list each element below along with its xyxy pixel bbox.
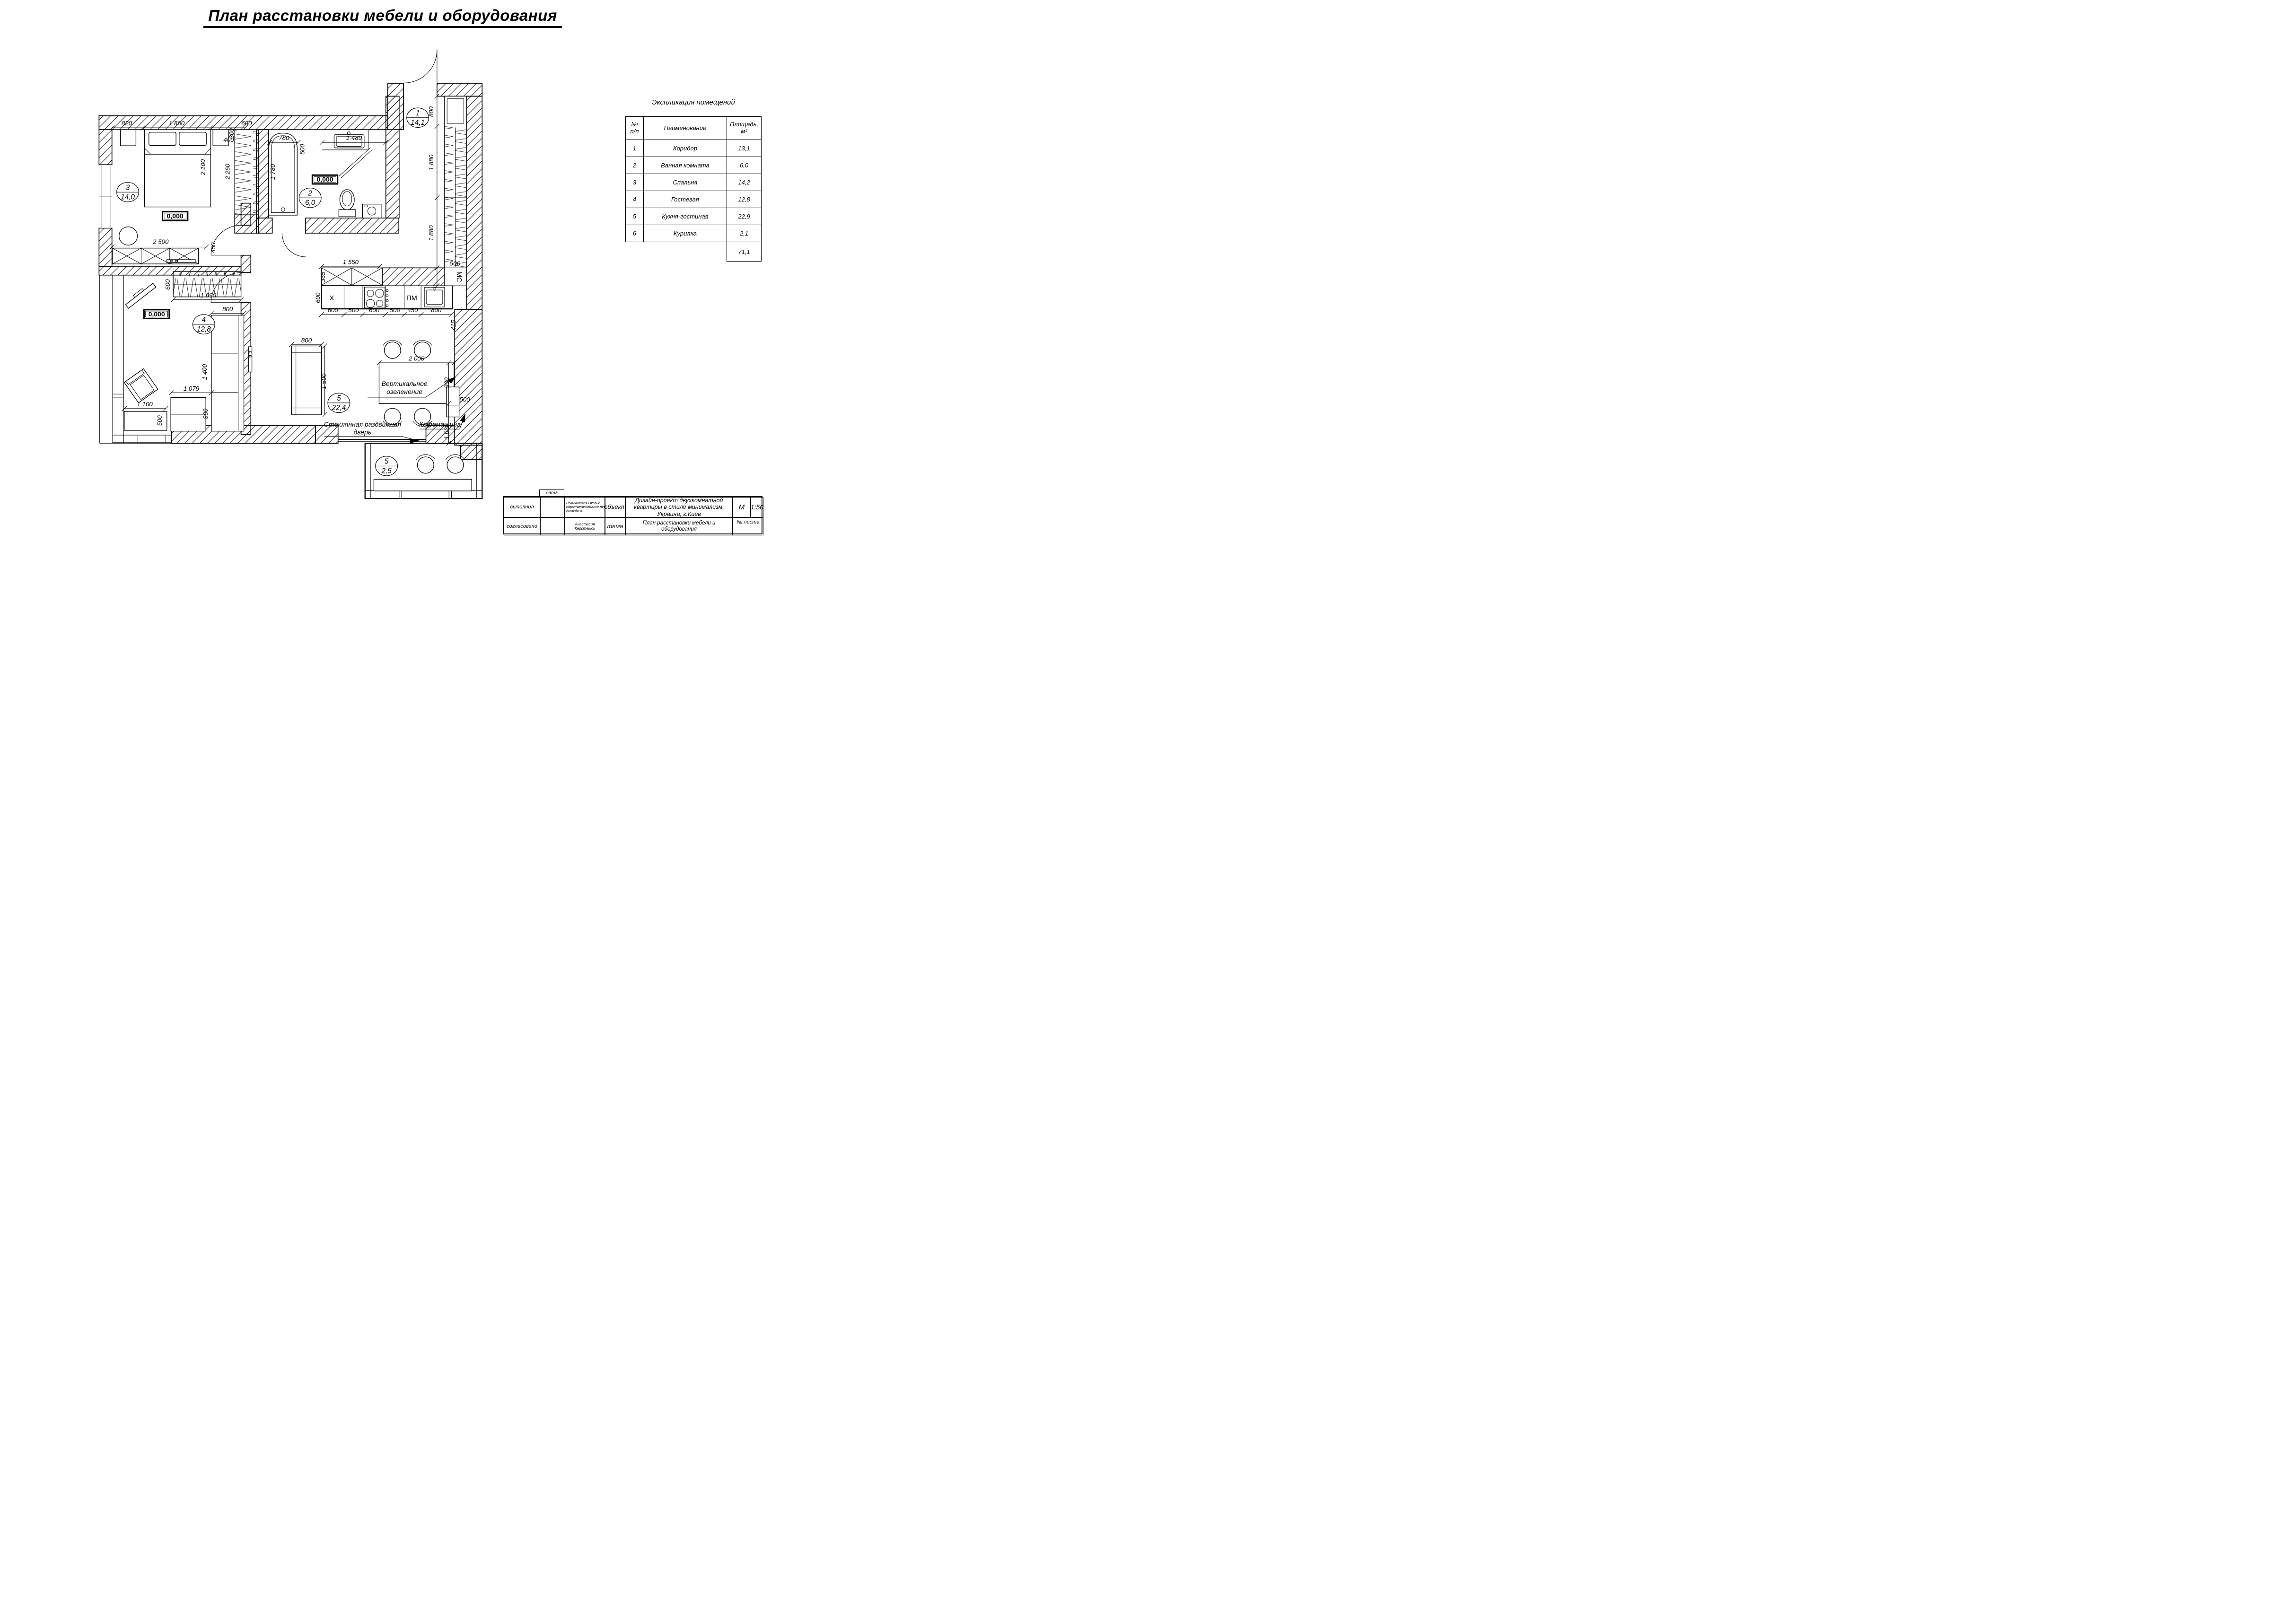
room-stamp: 412,8 bbox=[193, 315, 215, 334]
room-stamp: 114,1 bbox=[407, 108, 429, 127]
dim-label: 800 bbox=[222, 306, 233, 313]
room-area: 14,1 bbox=[411, 119, 425, 127]
room-stamp: 52,5 bbox=[376, 456, 398, 476]
dim-label: 1 550 bbox=[343, 258, 359, 265]
balcony-bench bbox=[374, 479, 472, 491]
sofa bbox=[211, 315, 244, 431]
dim-label: 500 bbox=[299, 144, 306, 155]
dim-label: 2 500 bbox=[152, 238, 169, 245]
dim-label: 500 bbox=[156, 415, 163, 426]
dim-label: 1 780 bbox=[269, 164, 276, 180]
dim-label: 500 bbox=[348, 306, 359, 314]
dim-label: 300 bbox=[228, 128, 235, 139]
room-name: Курилка bbox=[643, 225, 727, 242]
dim-label: 500 bbox=[390, 306, 401, 314]
room-area: 22,9 bbox=[727, 208, 762, 225]
room-number: 3 bbox=[126, 184, 130, 192]
pillow bbox=[179, 132, 206, 145]
dim-label: 800 bbox=[301, 337, 312, 344]
scale-value: 1:50 bbox=[751, 497, 763, 517]
theme-text: План расстановки мебели и оборудования bbox=[625, 517, 733, 535]
balcony-chair bbox=[447, 457, 464, 473]
room-area: 12,8 bbox=[197, 325, 211, 333]
dim-label: 1 480 bbox=[346, 134, 362, 141]
dim-label: 1 800 bbox=[169, 120, 185, 127]
armchair bbox=[124, 369, 158, 403]
dim-label: 500 bbox=[459, 396, 470, 403]
date-empty2 bbox=[540, 517, 565, 535]
room-area: 22,4 bbox=[331, 404, 346, 412]
room-number: 6 bbox=[626, 225, 644, 242]
floor-plan: МС X ПМ bbox=[88, 36, 511, 520]
explication-row: 5Кухня-гостиная22,9 bbox=[626, 208, 762, 225]
dim-label: 1 880 bbox=[428, 154, 435, 170]
object-text: Дизайн-проект двухкомнатной квартиры в с… bbox=[625, 497, 733, 517]
theme-label: тема bbox=[605, 517, 625, 535]
greening-label: Вертикальное bbox=[382, 380, 428, 387]
nightstand bbox=[121, 129, 136, 146]
bath-door-arc bbox=[282, 233, 306, 257]
washer-label: МС bbox=[455, 271, 463, 282]
dishwasher-label: ПМ bbox=[406, 295, 417, 302]
elevation-value: 0,000 bbox=[317, 175, 333, 183]
title-block: выполнил согласовано Ракичинская Оксана … bbox=[503, 496, 762, 534]
room-area: 14,2 bbox=[727, 174, 762, 191]
room-name: Кухня-гостиная bbox=[643, 208, 727, 225]
elevation-value: 0,000 bbox=[149, 310, 165, 318]
dim-label: 2 260 bbox=[224, 164, 231, 180]
dim-label: 2 000 bbox=[408, 355, 425, 362]
room-name: Ванная комната bbox=[643, 157, 727, 174]
pillow bbox=[149, 132, 176, 145]
room-name: Спальня bbox=[643, 174, 727, 191]
room-area: 6,0 bbox=[305, 199, 315, 207]
dim-label: 800 bbox=[431, 306, 442, 314]
washing-machine bbox=[362, 204, 381, 218]
kitchen-living-sofa bbox=[291, 346, 321, 414]
dim-label: 600 bbox=[369, 306, 380, 314]
room-area: 6,0 bbox=[727, 157, 762, 174]
room-area: 2,1 bbox=[727, 225, 762, 242]
room-area: 13,1 bbox=[727, 140, 762, 157]
room-stamp: 314,0 bbox=[117, 183, 139, 202]
dim-label: 600 bbox=[241, 120, 252, 127]
date-cell: дата bbox=[539, 489, 564, 497]
elevation-value: 0,000 bbox=[167, 212, 184, 220]
greening-label2: озеленение bbox=[386, 388, 422, 395]
floor-plan-svg: МС X ПМ bbox=[88, 36, 511, 520]
room-name: Коридор bbox=[643, 140, 727, 157]
total-area: 71,1 bbox=[727, 242, 762, 262]
explication-title: Экспликация помещений bbox=[625, 98, 762, 106]
coffee-label: Кофемашина bbox=[419, 420, 461, 428]
col-header-area: Площадь, м² bbox=[727, 117, 762, 140]
dim-label: 600 bbox=[164, 279, 171, 290]
room-number: 5 bbox=[337, 394, 341, 402]
toilet bbox=[339, 190, 355, 217]
dim-label: 1 030 bbox=[443, 423, 450, 439]
dim-label: 1 500 bbox=[320, 373, 327, 389]
dim-label: 365 bbox=[319, 271, 326, 282]
room-number: 2 bbox=[307, 190, 312, 198]
made-by-label: выполнил bbox=[504, 497, 540, 517]
room-number: 4 bbox=[202, 316, 206, 324]
room-stamp: 26,0 bbox=[299, 188, 321, 208]
dim-label: 500 bbox=[450, 260, 461, 267]
sheet-number: № листа bbox=[733, 517, 763, 535]
bedroom-wardrobe bbox=[235, 130, 258, 215]
room-number: 1 bbox=[626, 140, 644, 157]
glass-door-label: Стеклянная раздвижная bbox=[324, 420, 402, 428]
dim-label: 820 bbox=[122, 120, 132, 127]
dim-label: 600 bbox=[314, 292, 321, 303]
room-area: 12,8 bbox=[727, 191, 762, 208]
room-number: 1 bbox=[416, 109, 420, 117]
dim-label: 415 bbox=[450, 320, 457, 331]
balcony-chair bbox=[418, 457, 434, 473]
explication-table: № п/п Наименование Площадь, м² 1Коридор1… bbox=[625, 116, 762, 262]
col-header-num: № п/п bbox=[626, 117, 644, 140]
room-area: 14,0 bbox=[121, 193, 135, 201]
room-number: 2 bbox=[626, 157, 644, 174]
sink-faucet bbox=[347, 131, 350, 134]
dim-label: 450 bbox=[407, 306, 418, 314]
dim-label: 450 bbox=[210, 242, 217, 253]
drawing-sheet: План расстановки мебели и оборудования bbox=[0, 0, 765, 536]
bathroom-fixtures bbox=[269, 130, 381, 218]
dim-label: 2 100 bbox=[200, 159, 207, 175]
dim-label: 1 880 bbox=[428, 225, 435, 241]
dim-label: 1 079 bbox=[184, 385, 200, 392]
room-number: 4 bbox=[626, 191, 644, 208]
room-number: 5 bbox=[385, 458, 389, 466]
approved-label: согласовано bbox=[504, 517, 540, 535]
corridor-wardrobe: МС bbox=[445, 96, 466, 286]
scale-m: М bbox=[733, 497, 751, 517]
total-row: 71,1 bbox=[626, 242, 762, 262]
author-cell: Ракичинская Оксана https://www.behance.n… bbox=[565, 497, 605, 517]
explication-row: 4Гостевая12,8 bbox=[626, 191, 762, 208]
room-number: 3 bbox=[626, 174, 644, 191]
fridge-label: X bbox=[329, 295, 334, 302]
tv-wall-mounted bbox=[248, 347, 252, 372]
date-empty bbox=[540, 497, 565, 517]
page-title: План расстановки мебели и оборудования bbox=[0, 7, 765, 28]
explication-row: 2Ванная комната6,0 bbox=[626, 157, 762, 174]
elevation-mark: 0,000 bbox=[312, 175, 337, 184]
dim-label: 1 100 bbox=[137, 401, 153, 408]
room-name: Гостевая bbox=[643, 191, 727, 208]
explication-row: 1Коридор13,1 bbox=[626, 140, 762, 157]
elevation-mark: 0,000 bbox=[162, 212, 187, 221]
room-area: 2,5 bbox=[381, 467, 392, 475]
coffee-machine-cabinet bbox=[447, 387, 459, 417]
dim-label: 930 bbox=[443, 377, 450, 388]
entry-door-arc bbox=[404, 50, 437, 83]
dim-label: 1 690 bbox=[201, 292, 217, 299]
explication-row: 3Спальня14,2 bbox=[626, 174, 762, 191]
pouf bbox=[119, 227, 138, 245]
explication-row: 6Курилка2,1 bbox=[626, 225, 762, 242]
dim-label: 600 bbox=[328, 306, 339, 314]
object-label: объект bbox=[605, 497, 625, 517]
room-stamp: 522,4 bbox=[328, 393, 350, 412]
dim-label: 800 bbox=[202, 408, 209, 419]
room-number: 5 bbox=[626, 208, 644, 225]
glass-door-label2: дверь bbox=[354, 428, 372, 436]
dim-label: 1 400 bbox=[201, 364, 208, 380]
elevation-mark: 0,000 bbox=[144, 310, 169, 319]
dim-label: 780 bbox=[279, 134, 289, 141]
col-header-name: Наименование bbox=[643, 117, 727, 140]
shower-partition bbox=[339, 148, 372, 178]
approver-cell: Анастасия Керстенюк bbox=[565, 517, 605, 535]
tv-diagonal bbox=[124, 281, 156, 308]
